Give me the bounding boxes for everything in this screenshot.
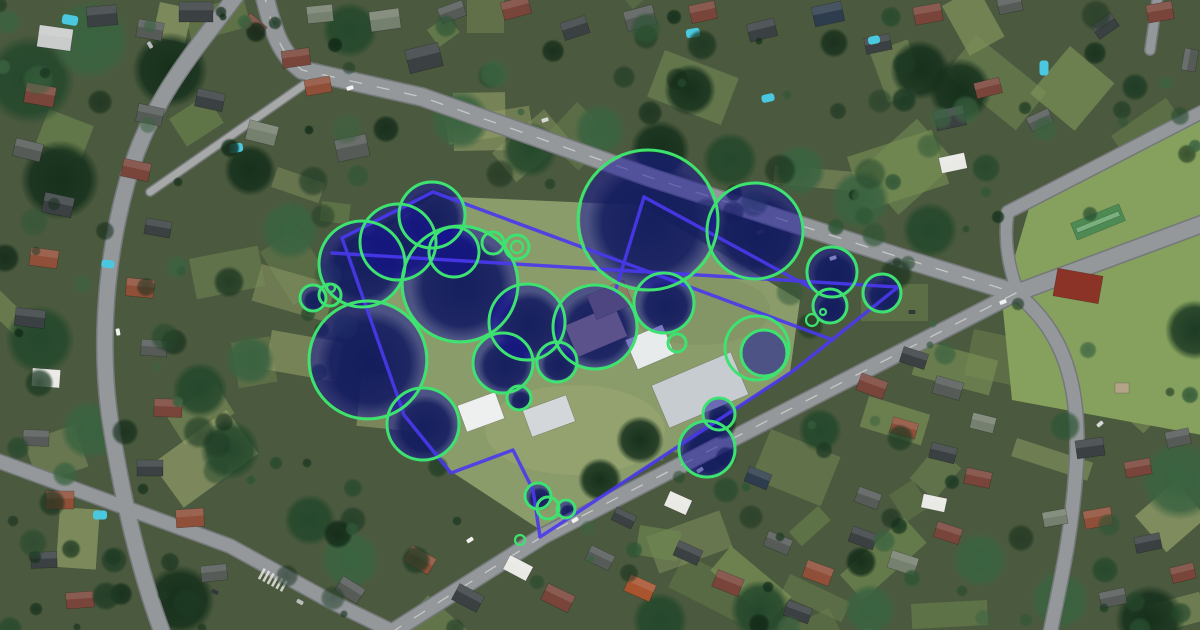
aerial-imagery-canvas bbox=[0, 0, 1200, 630]
satellite-map-view[interactable] bbox=[0, 0, 1200, 630]
